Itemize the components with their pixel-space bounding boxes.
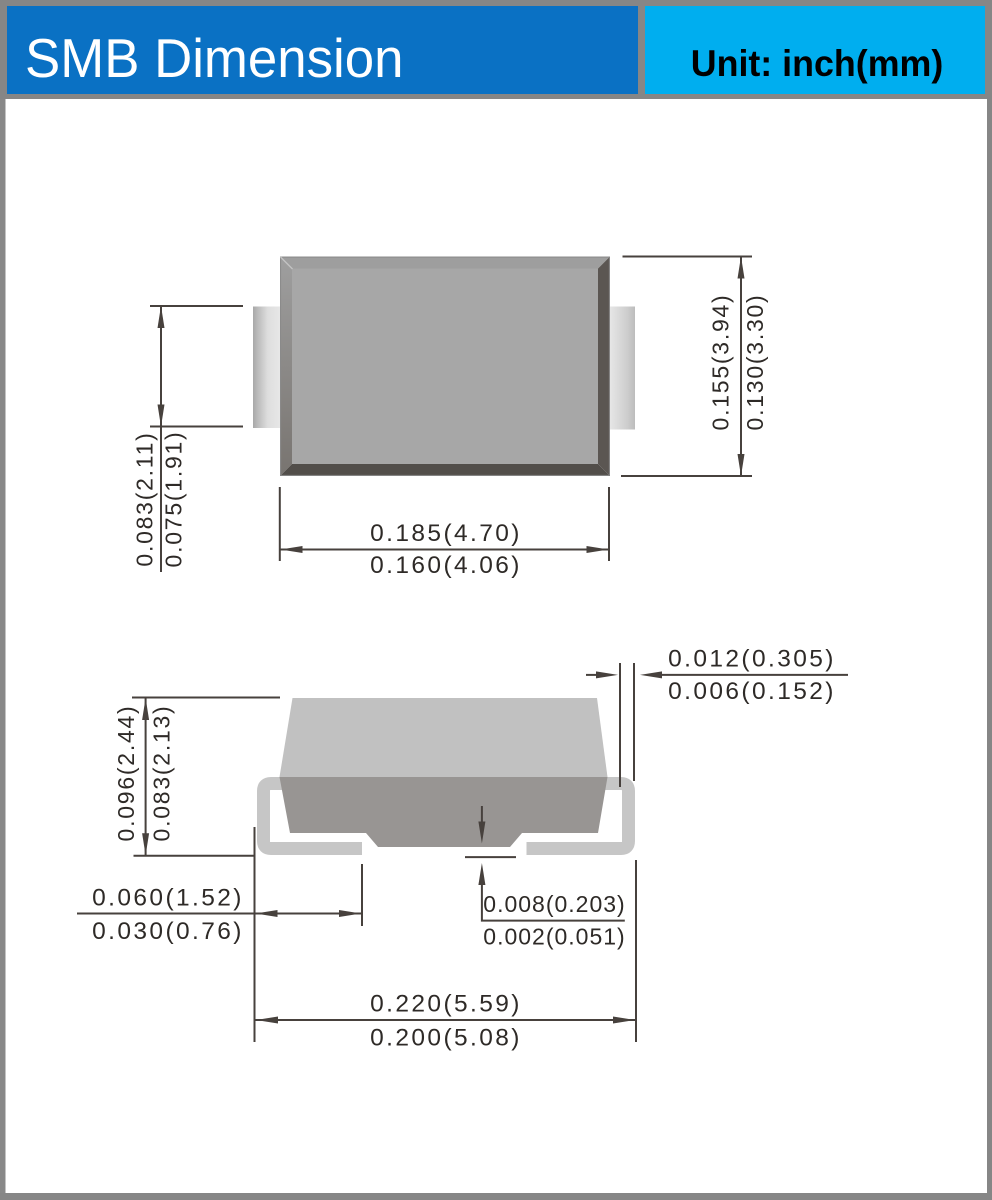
svg-text:0.083(2.11): 0.083(2.11) <box>132 431 158 566</box>
svg-text:0.008(0.203): 0.008(0.203) <box>483 891 625 917</box>
svg-text:0.096(2.44): 0.096(2.44) <box>113 705 139 842</box>
svg-text:0.220(5.59): 0.220(5.59) <box>370 991 522 1018</box>
svg-text:Unit: inch(mm): Unit: inch(mm) <box>691 42 944 84</box>
svg-text:0.083(2.13): 0.083(2.13) <box>149 705 175 842</box>
svg-text:0.060(1.52): 0.060(1.52) <box>92 885 244 912</box>
svg-text:0.075(1.91): 0.075(1.91) <box>161 431 187 568</box>
svg-text:0.030(0.76): 0.030(0.76) <box>92 918 244 945</box>
svg-text:0.002(0.051): 0.002(0.051) <box>483 923 625 949</box>
svg-text:0.155(3.94): 0.155(3.94) <box>708 294 734 431</box>
svg-text:0.012(0.305): 0.012(0.305) <box>668 645 836 672</box>
svg-text:0.006(0.152): 0.006(0.152) <box>668 678 836 705</box>
svg-text:0.130(3.30): 0.130(3.30) <box>742 294 768 431</box>
svg-text:0.160(4.06): 0.160(4.06) <box>370 552 522 579</box>
svg-text:SMB Dimension: SMB Dimension <box>25 28 403 89</box>
svg-text:0.200(5.08): 0.200(5.08) <box>370 1025 522 1052</box>
svg-text:0.185(4.70): 0.185(4.70) <box>370 520 522 547</box>
